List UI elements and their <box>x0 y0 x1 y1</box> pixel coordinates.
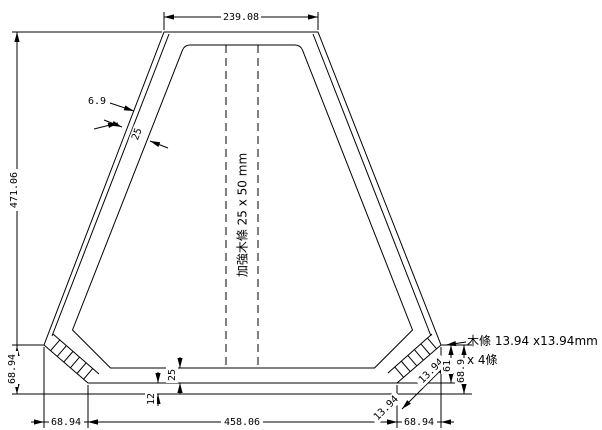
dim-bottom-center-text: 458.06 <box>224 417 260 428</box>
dim-bottom-right: 68.94 <box>384 416 454 428</box>
note-center-brace-text: 加強木條 25 x 50 mm <box>236 153 250 277</box>
dim-bottom-skin-text: 12 <box>146 393 157 405</box>
left-wall-skin-line <box>52 34 169 336</box>
note-corner-strips-line1: 木條 13.94 x13.94mm <box>467 334 598 348</box>
dim-bottom-wall: 25 <box>166 357 180 394</box>
note-corner-strips: 木條 13.94 x13.94mm x 4條 <box>446 334 598 367</box>
dim-left-corner-height-text: 68.94 <box>7 354 18 384</box>
dim-outer-skin: 6.9 <box>88 96 134 129</box>
dim-overall-height: 471.06 <box>8 32 20 394</box>
dim-right-corner-outer: 68.9 <box>455 345 467 394</box>
right-wall-skin-line <box>313 34 431 336</box>
dim-outer-skin-text: 6.9 <box>88 96 106 107</box>
dim-top-width-text: 239.08 <box>223 12 259 23</box>
note-center-brace: 加強木條 25 x 50 mm <box>236 153 250 277</box>
dim-bottom-center: 458.06 <box>88 416 397 428</box>
dim-right-corner-inner: 61 <box>441 345 453 383</box>
dim-right-corner-outer-text: 68.9 <box>456 359 467 383</box>
technical-drawing: 239.08 471.06 68.94 68.94 458.06 68.94 <box>0 0 602 430</box>
drawing-canvas: 239.08 471.06 68.94 68.94 458.06 68.94 <box>0 0 602 430</box>
dim-bottom-skin: 12 <box>145 372 158 406</box>
left-corner-hatch <box>51 340 93 379</box>
dim-bottom-wall-text: 25 <box>167 369 178 381</box>
bottom-skin-board <box>44 347 441 394</box>
dim-right-corner-inner-text: 61 <box>442 360 453 372</box>
dim-bottom-left-text: 68.94 <box>51 417 81 428</box>
dim-top-width: 239.08 <box>164 11 318 23</box>
note-corner-strips-line2: x 4條 <box>467 353 498 367</box>
dim-side-wall: 25 <box>104 120 168 148</box>
dim-overall-height-text: 471.06 <box>9 172 20 208</box>
dim-left-corner-height: 68.94 <box>6 346 18 387</box>
dim-bottom-right-text: 68.94 <box>404 417 434 428</box>
dim-corner-strip-lower: 13.94 <box>369 391 403 425</box>
